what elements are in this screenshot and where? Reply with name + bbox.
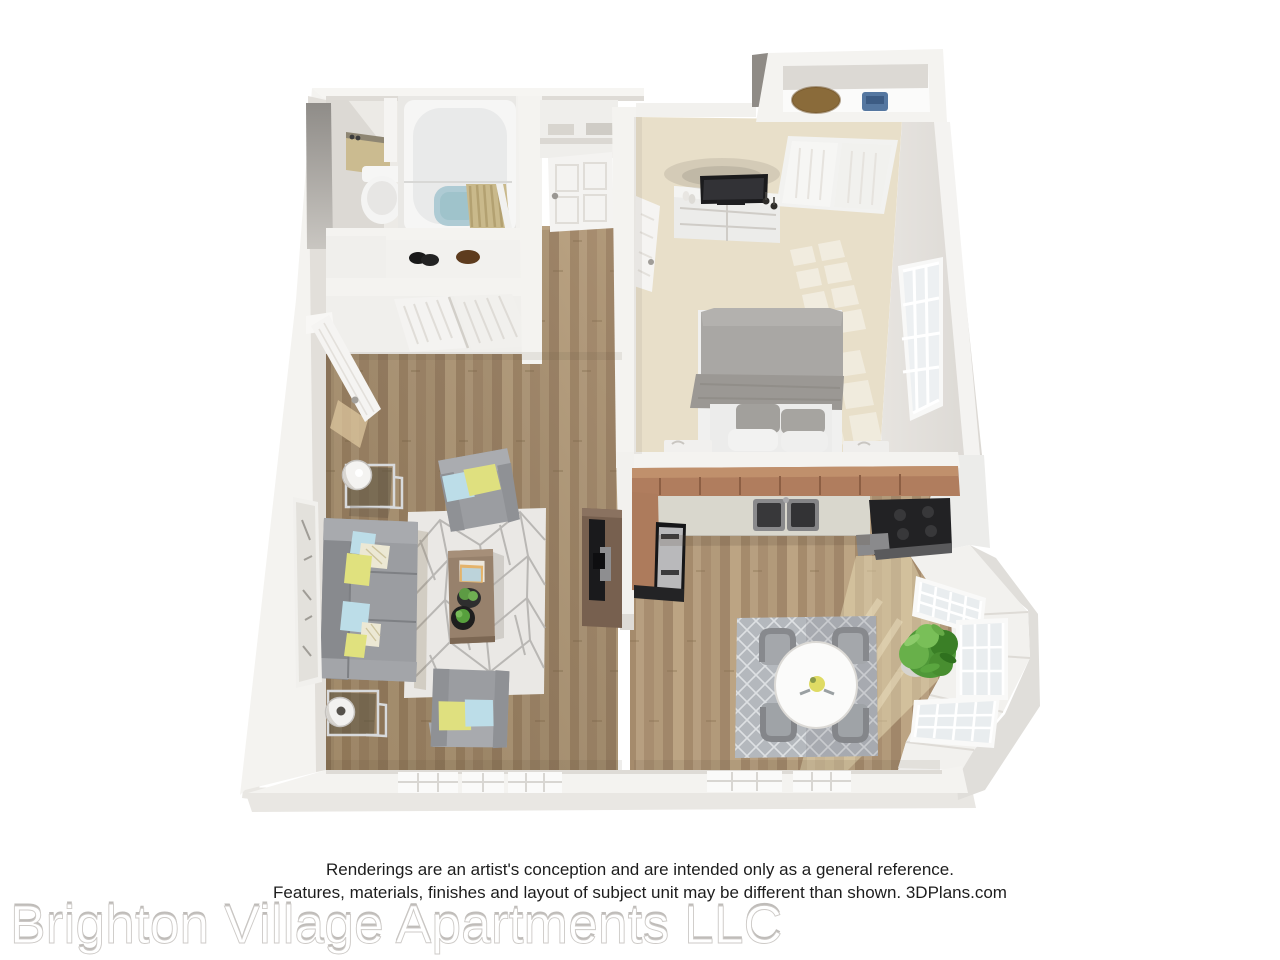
svg-text:Brighton Village Apartments LL: Brighton Village Apartments LLC <box>10 896 782 955</box>
svg-text:Renderings are an artist's con: Renderings are an artist's conception an… <box>326 860 954 879</box>
